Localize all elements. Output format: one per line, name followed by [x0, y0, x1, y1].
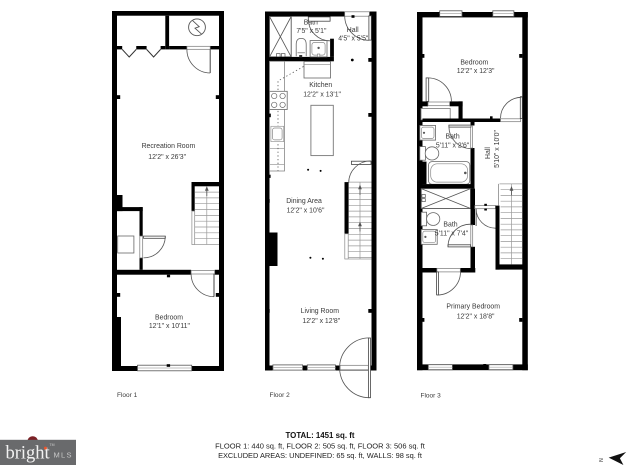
svg-text:4'5" x 5'5": 4'5" x 5'5" [338, 36, 369, 43]
svg-text:Recreation Room: Recreation Room [142, 143, 196, 150]
svg-text:EXCLUDED AREAS: UNDEFINED: 65: EXCLUDED AREAS: UNDEFINED: 65 sq. ft, WA… [218, 451, 422, 460]
svg-text:12'1" x 10'11": 12'1" x 10'11" [149, 323, 191, 330]
svg-text:TOTAL: 1451 sq. ft: TOTAL: 1451 sq. ft [286, 431, 355, 440]
svg-text:Bedroom: Bedroom [460, 59, 488, 66]
svg-text:Floor 3: Floor 3 [421, 393, 442, 400]
svg-text:12'2" x 12'8": 12'2" x 12'8" [302, 318, 340, 325]
svg-text:7'5" x 5'1": 7'5" x 5'1" [296, 28, 327, 35]
svg-text:Floor 2: Floor 2 [270, 392, 291, 399]
svg-text:Primary Bedroom: Primary Bedroom [446, 303, 500, 310]
svg-text:FLOOR 1: 440 sq. ft, FLOOR 2:: FLOOR 1: 440 sq. ft, FLOOR 2: 505 sq. ft… [215, 441, 426, 450]
svg-text:N: N [599, 458, 605, 462]
svg-text:12'2" x 18'8": 12'2" x 18'8" [457, 313, 495, 320]
svg-text:TM: TM [50, 443, 55, 447]
svg-text:5'11" x 2'6": 5'11" x 2'6" [436, 143, 470, 150]
svg-text:Kitchen: Kitchen [309, 82, 332, 89]
svg-text:Floor 1: Floor 1 [117, 392, 138, 399]
svg-text:12'2" x 12'3": 12'2" x 12'3" [457, 68, 495, 75]
svg-text:Bedroom: Bedroom [155, 314, 183, 321]
svg-text:MLS: MLS [54, 451, 73, 460]
svg-text:bright: bright [6, 444, 51, 464]
svg-text:Bath: Bath [443, 222, 457, 229]
svg-text:Living Room: Living Room [301, 308, 340, 315]
svg-text:12'2" x 13'1": 12'2" x 13'1" [303, 92, 341, 99]
svg-text:12'2" x 26'3": 12'2" x 26'3" [148, 154, 186, 161]
svg-text:Hall: Hall [347, 27, 359, 34]
svg-text:Hall: Hall [485, 147, 492, 159]
svg-text:12'2" x 10'6": 12'2" x 10'6" [287, 208, 325, 215]
svg-text:5'10" x 10'0": 5'10" x 10'0" [494, 130, 501, 168]
svg-text:Dining Area: Dining Area [286, 198, 322, 205]
svg-text:Bath: Bath [446, 134, 460, 141]
